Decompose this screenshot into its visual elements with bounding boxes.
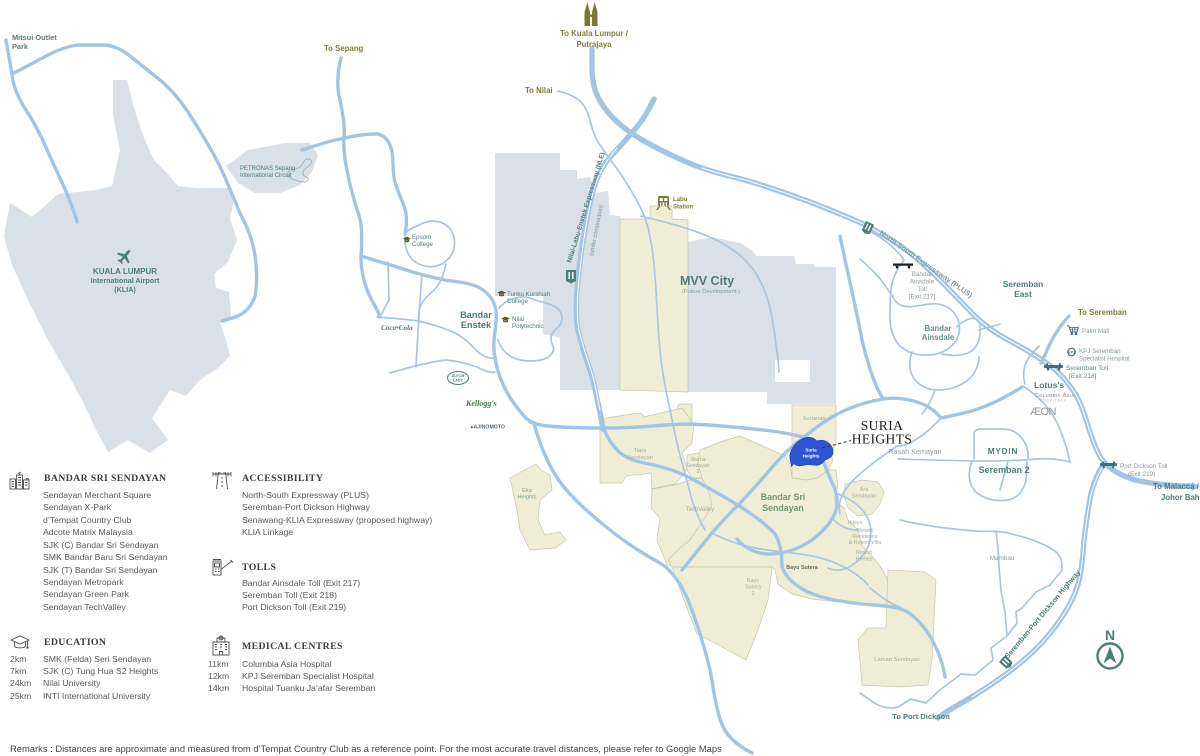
- svg-text:Ainsdale: Ainsdale: [922, 333, 955, 342]
- svg-text:ÆON: ÆON: [1030, 406, 1057, 418]
- svg-text:Bayu Sutera: Bayu Sutera: [786, 565, 818, 571]
- svg-text:Kellogg's: Kellogg's: [465, 399, 497, 408]
- svg-text:International Circuit: International Circuit: [240, 173, 292, 179]
- svg-text:Suria: Suria: [805, 448, 817, 453]
- svg-text:East: East: [1014, 289, 1032, 299]
- svg-text:Resort: Resort: [856, 550, 872, 556]
- svg-text:KPJ: KPJ: [1068, 351, 1075, 355]
- svg-text:Bandar Sri: Bandar Sri: [761, 492, 806, 502]
- svg-text:(Future Development ): (Future Development ): [682, 289, 740, 295]
- svg-text:To Malacca /: To Malacca /: [1153, 482, 1200, 491]
- svg-text:DUTCH: DUTCH: [452, 374, 465, 378]
- svg-text:Seremban Toll: Seremban Toll: [1066, 365, 1109, 372]
- svg-text:Sendayan: Sendayan: [852, 494, 876, 500]
- svg-text:KPJ Seremban: KPJ Seremban: [1079, 348, 1121, 355]
- svg-text:(KLIA): (KLIA): [114, 285, 136, 294]
- svg-text:Toll: Toll: [917, 286, 927, 293]
- svg-text:Laman Sendayan: Laman Sendayan: [874, 657, 919, 663]
- svg-text:Polytechnic: Polytechnic: [512, 323, 544, 330]
- svg-text:Ainsdale: Ainsdale: [910, 279, 935, 286]
- svg-text:To Kuala Lumpur /: To Kuala Lumpur /: [560, 29, 629, 38]
- svg-text:Bandar: Bandar: [912, 271, 933, 278]
- svg-text:Seremban: Seremban: [1003, 279, 1044, 289]
- svg-text:International Airport: International Airport: [91, 276, 160, 285]
- svg-text:Bandar: Bandar: [460, 310, 492, 320]
- svg-text:Eka: Eka: [522, 488, 533, 494]
- svg-text:Lotus's: Lotus's: [1034, 380, 1064, 390]
- svg-text:Labu: Labu: [673, 197, 688, 203]
- svg-text:Palm Mall: Palm Mall: [1082, 328, 1109, 335]
- svg-text:Rasah Kemayan: Rasah Kemayan: [888, 447, 941, 456]
- svg-text:MYDIN: MYDIN: [988, 447, 1018, 456]
- svg-text:College: College: [412, 241, 434, 248]
- svg-text:[Exit 217]: [Exit 217]: [909, 294, 936, 301]
- svg-text:Tiara: Tiara: [634, 448, 648, 454]
- svg-text:(Exit 219): (Exit 219): [1128, 471, 1155, 478]
- svg-text:College: College: [507, 298, 529, 305]
- svg-text:HEIGHTS: HEIGHTS: [852, 432, 913, 447]
- svg-text:Enstek: Enstek: [461, 320, 492, 330]
- svg-text:Sendayan: Sendayan: [762, 503, 804, 513]
- svg-text:LADY: LADY: [453, 379, 463, 383]
- svg-text:▸AJINOMOTO: ▸AJINOMOTO: [470, 425, 505, 431]
- svg-text:2: 2: [752, 591, 755, 597]
- svg-text:Surianas: Surianas: [803, 416, 826, 422]
- svg-text:To Seremban: To Seremban: [1078, 308, 1127, 317]
- svg-text:Nilai: Nilai: [512, 316, 524, 323]
- svg-text:To Port Dickson: To Port Dickson: [892, 712, 950, 721]
- svg-text:Specialist Hospital: Specialist Hospital: [1079, 356, 1130, 363]
- svg-text:N: N: [1105, 627, 1115, 643]
- svg-text:MVV City: MVV City: [680, 274, 734, 288]
- svg-text:Heights: Heights: [518, 495, 537, 501]
- svg-text:Johor Bahru: Johor Bahru: [1161, 493, 1200, 502]
- svg-text:Ara: Ara: [860, 487, 868, 493]
- svg-text:2: 2: [697, 469, 700, 475]
- svg-text:To Sepang: To Sepang: [324, 44, 364, 53]
- svg-text:To Nilai: To Nilai: [525, 86, 553, 95]
- svg-text:Hijayu: Hijayu: [848, 520, 863, 526]
- svg-text:Park: Park: [12, 42, 29, 51]
- svg-text:Mambau: Mambau: [990, 555, 1015, 562]
- svg-text:[Exit 218]: [Exit 218]: [1069, 373, 1097, 380]
- svg-text:& Resort Villa: & Resort Villa: [849, 540, 882, 546]
- svg-text:TechValley: TechValley: [686, 507, 715, 513]
- svg-text:HOSPITALS: HOSPITALS: [1040, 399, 1067, 403]
- svg-text:Station: Station: [673, 205, 694, 211]
- svg-text:Mitsui Outlet: Mitsui Outlet: [12, 33, 57, 42]
- svg-text:Homes: Homes: [855, 557, 872, 563]
- svg-text:Coca•Cola: Coca•Cola: [381, 324, 413, 332]
- svg-text:Port Dickson Toll: Port Dickson Toll: [1120, 463, 1167, 470]
- svg-text:Putrajaya: Putrajaya: [576, 40, 612, 49]
- svg-text:PETRONAS Sepang: PETRONAS Sepang: [240, 166, 295, 172]
- svg-text:Bandar: Bandar: [925, 324, 952, 333]
- svg-text:Epsom: Epsom: [412, 234, 431, 241]
- svg-text:Tunku Kurshiah: Tunku Kurshiah: [507, 291, 551, 298]
- svg-text:Bayu: Bayu: [747, 578, 759, 584]
- svg-text:Sendayan: Sendayan: [627, 455, 653, 461]
- svg-text:Heights: Heights: [803, 454, 820, 459]
- svg-text:Sutera: Sutera: [745, 585, 761, 591]
- svg-text:KUALA LUMPUR: KUALA LUMPUR: [93, 267, 157, 276]
- svg-text:Seremban 2: Seremban 2: [978, 465, 1029, 475]
